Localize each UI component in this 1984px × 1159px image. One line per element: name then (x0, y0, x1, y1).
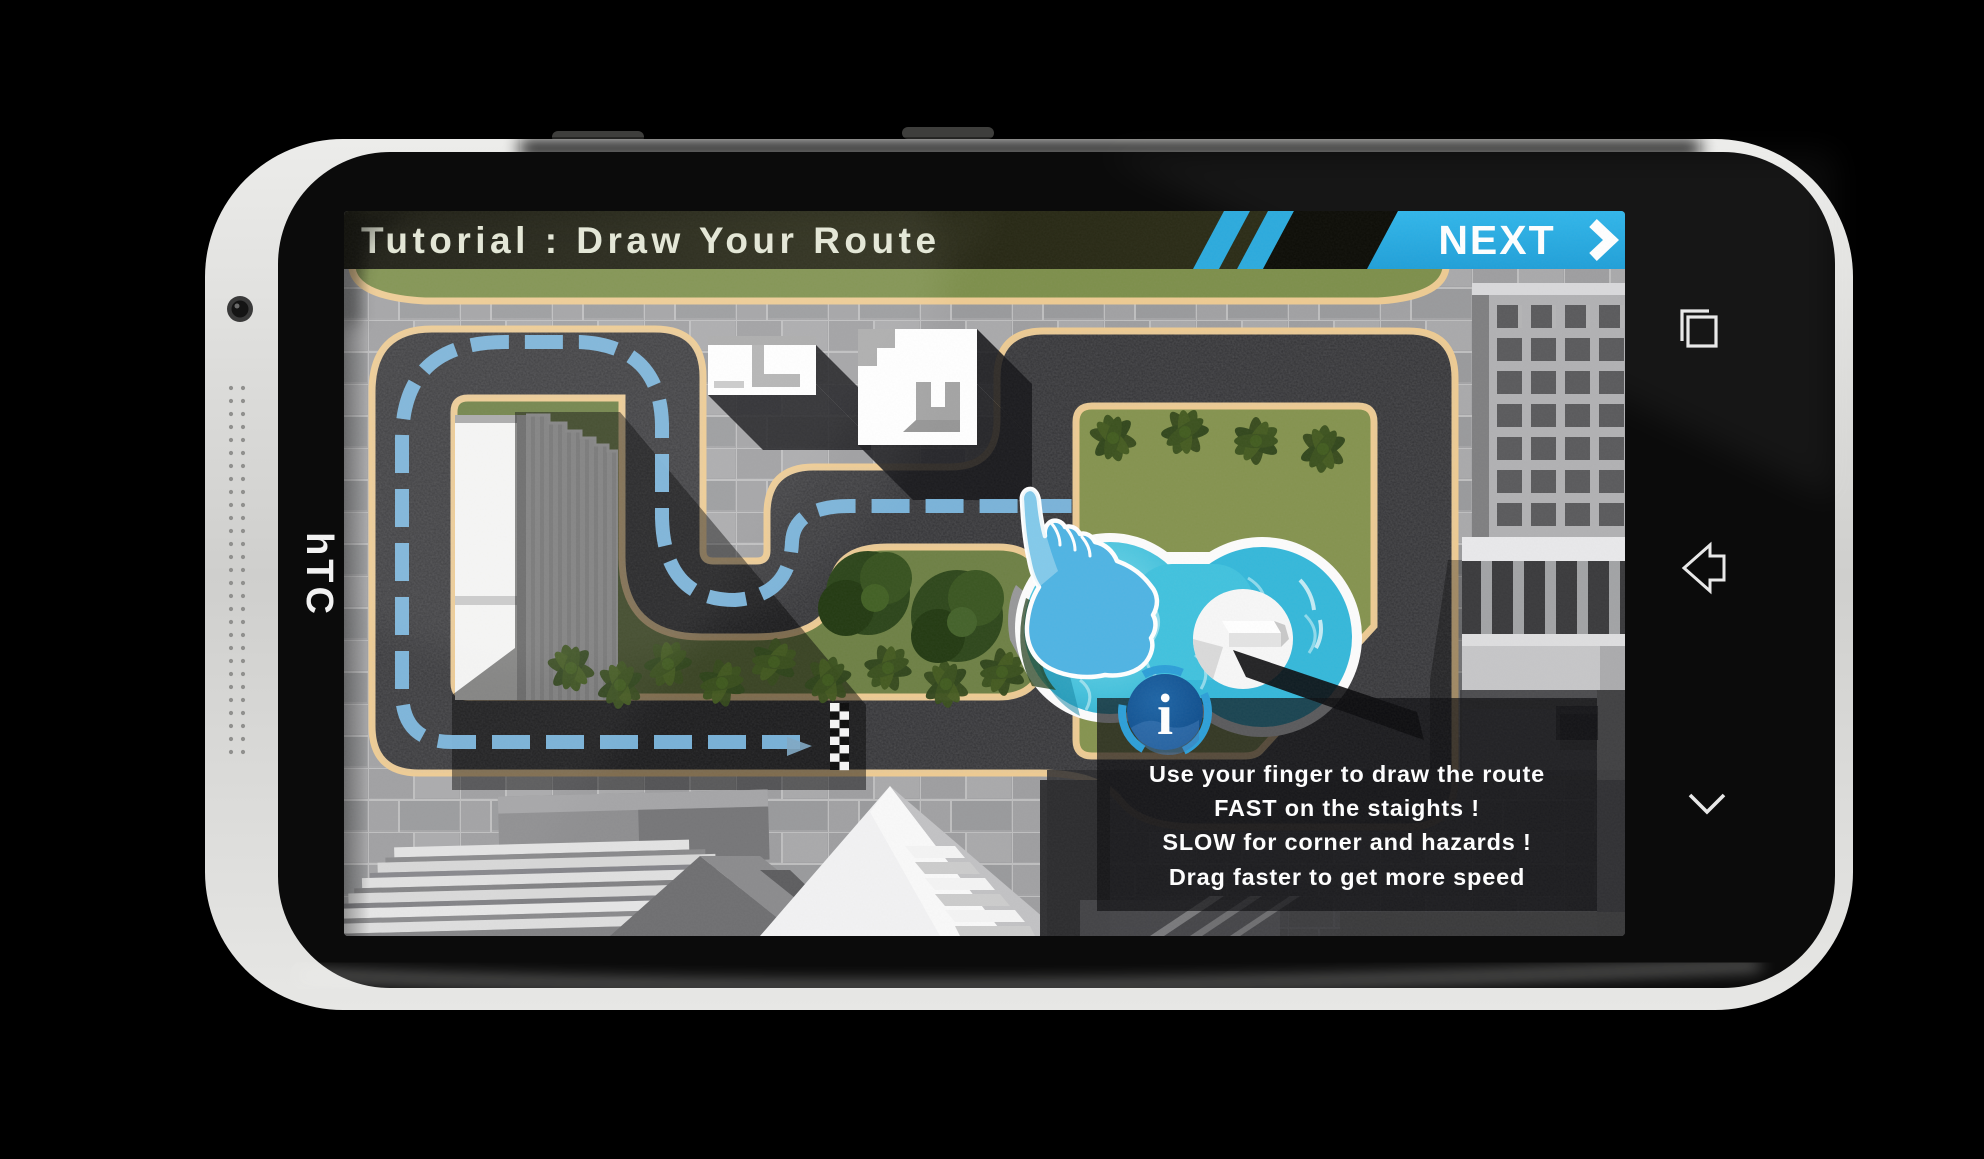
svg-text:hTC: hTC (298, 532, 340, 618)
